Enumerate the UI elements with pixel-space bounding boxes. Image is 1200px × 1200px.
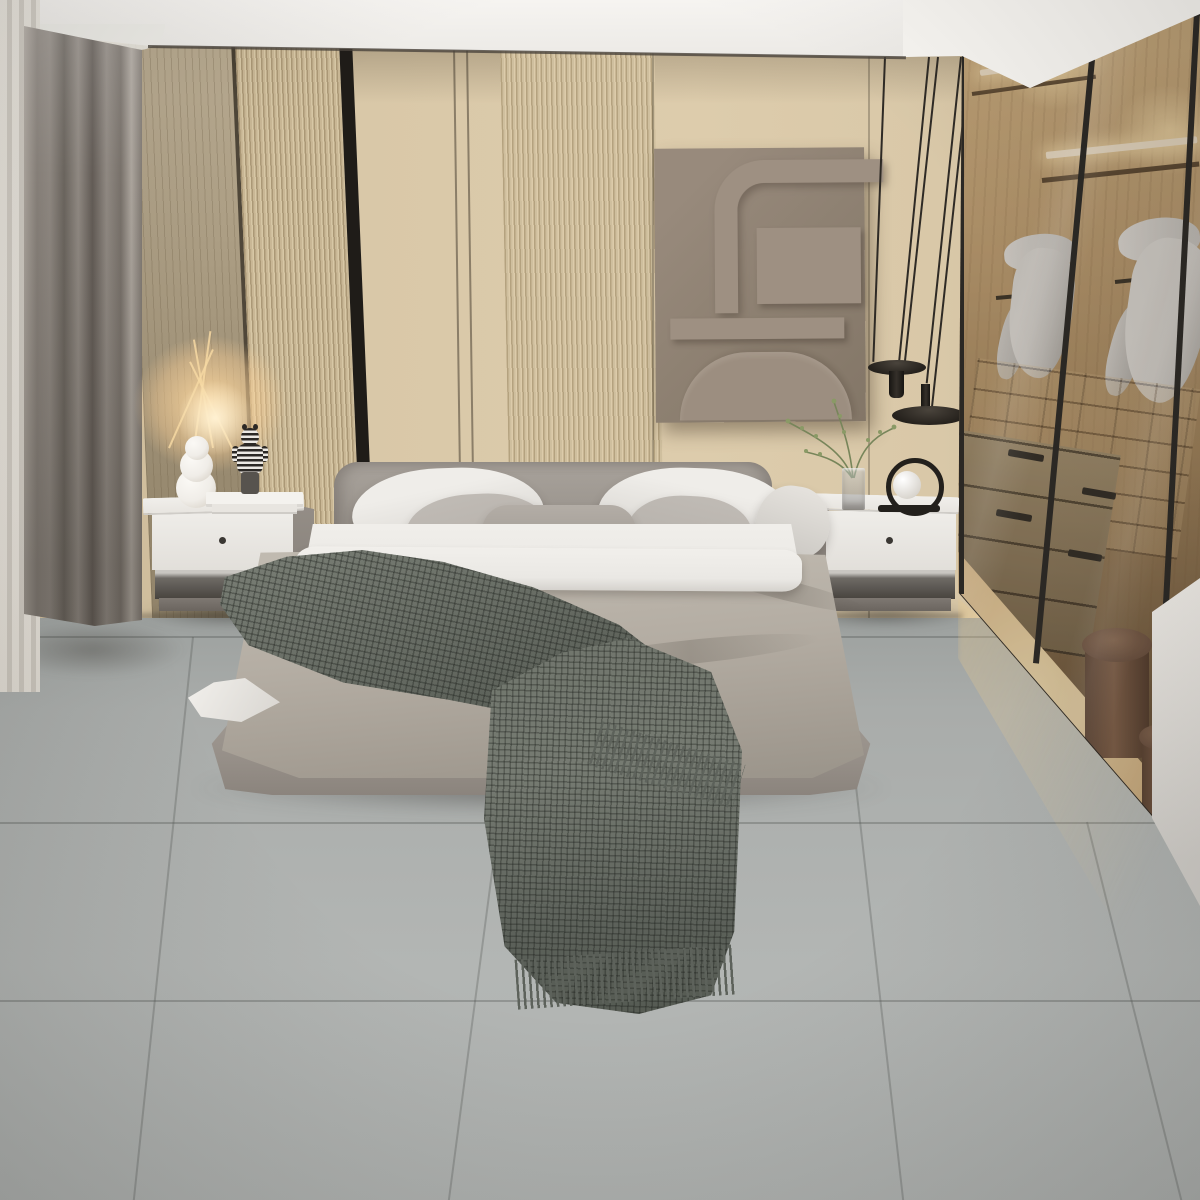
nightstand-right-open-shelf xyxy=(828,570,955,599)
bubble-vase-sphere xyxy=(185,436,209,460)
drawer-knob xyxy=(886,537,893,544)
bear-figurine-torso xyxy=(237,444,263,474)
book-stack xyxy=(212,504,297,514)
bedroom-render xyxy=(0,0,1200,1200)
art-bar xyxy=(670,317,844,339)
glass-vase xyxy=(842,468,865,510)
drawer-knob xyxy=(219,537,226,544)
art-rectangle xyxy=(757,227,862,304)
figurine-legs xyxy=(241,472,259,494)
branch-plant xyxy=(772,388,912,480)
wall-art-relief xyxy=(654,147,866,422)
ring-lamp-ring xyxy=(886,458,944,516)
